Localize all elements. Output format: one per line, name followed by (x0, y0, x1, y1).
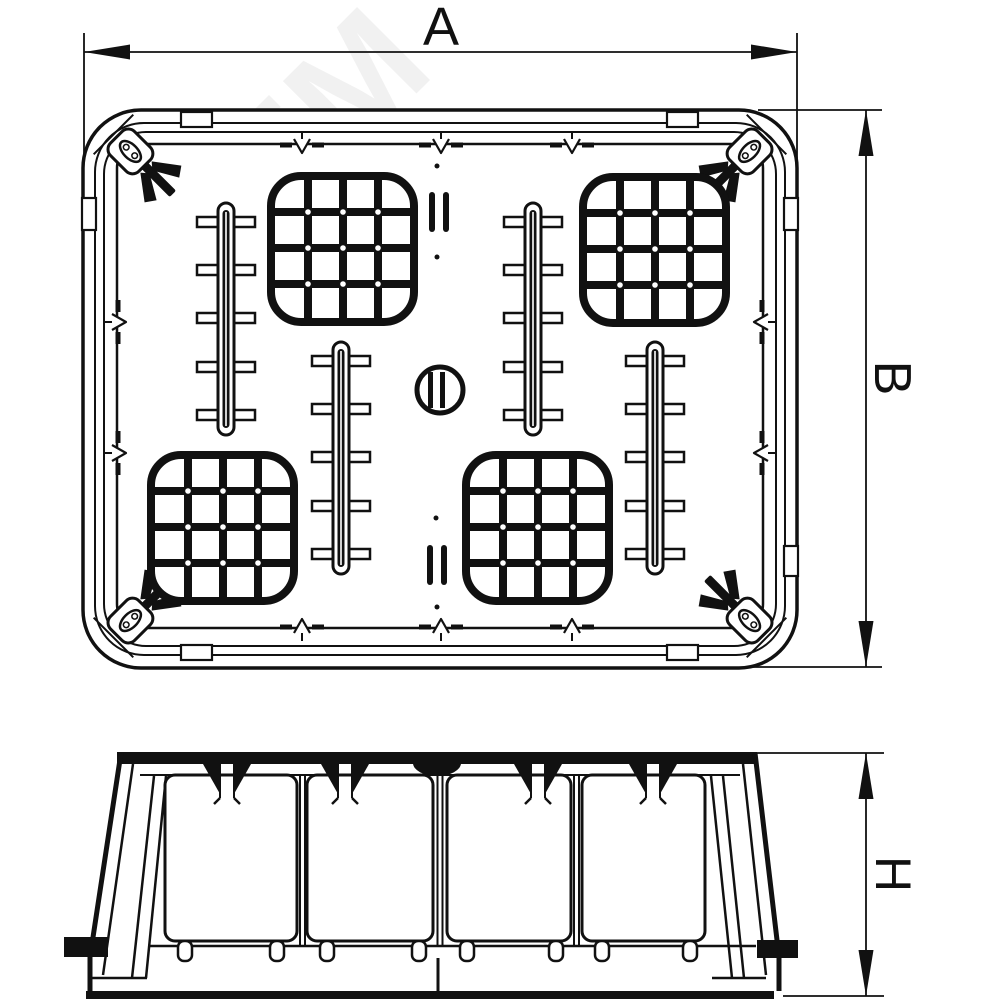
grid-insert (583, 177, 726, 323)
rim-recess (413, 753, 461, 776)
center-hole (417, 367, 463, 413)
side-view (64, 752, 798, 999)
left-lug (64, 937, 108, 957)
right-lug (757, 940, 798, 958)
pallet-box-drawing: ЭТМ (0, 0, 1000, 1000)
grid-insert (271, 176, 414, 322)
arrowhead-icon (751, 45, 797, 60)
panels (165, 775, 705, 941)
top-view (82, 110, 798, 668)
arrowhead-icon (84, 45, 130, 60)
arrowhead-icon (859, 753, 874, 799)
dimension-h-label: H (865, 856, 921, 892)
dimension-h (757, 753, 884, 996)
grid-insert (151, 455, 294, 601)
dimension-a-label: A (423, 0, 459, 57)
arrowhead-icon (859, 110, 874, 156)
dimension-b-label: B (863, 361, 921, 396)
arrowhead-icon (859, 621, 874, 667)
arrowhead-icon (859, 950, 874, 996)
baseline (86, 991, 774, 999)
technical-drawing-page: ЭТМ (0, 0, 1000, 1000)
grid-insert (466, 455, 609, 601)
